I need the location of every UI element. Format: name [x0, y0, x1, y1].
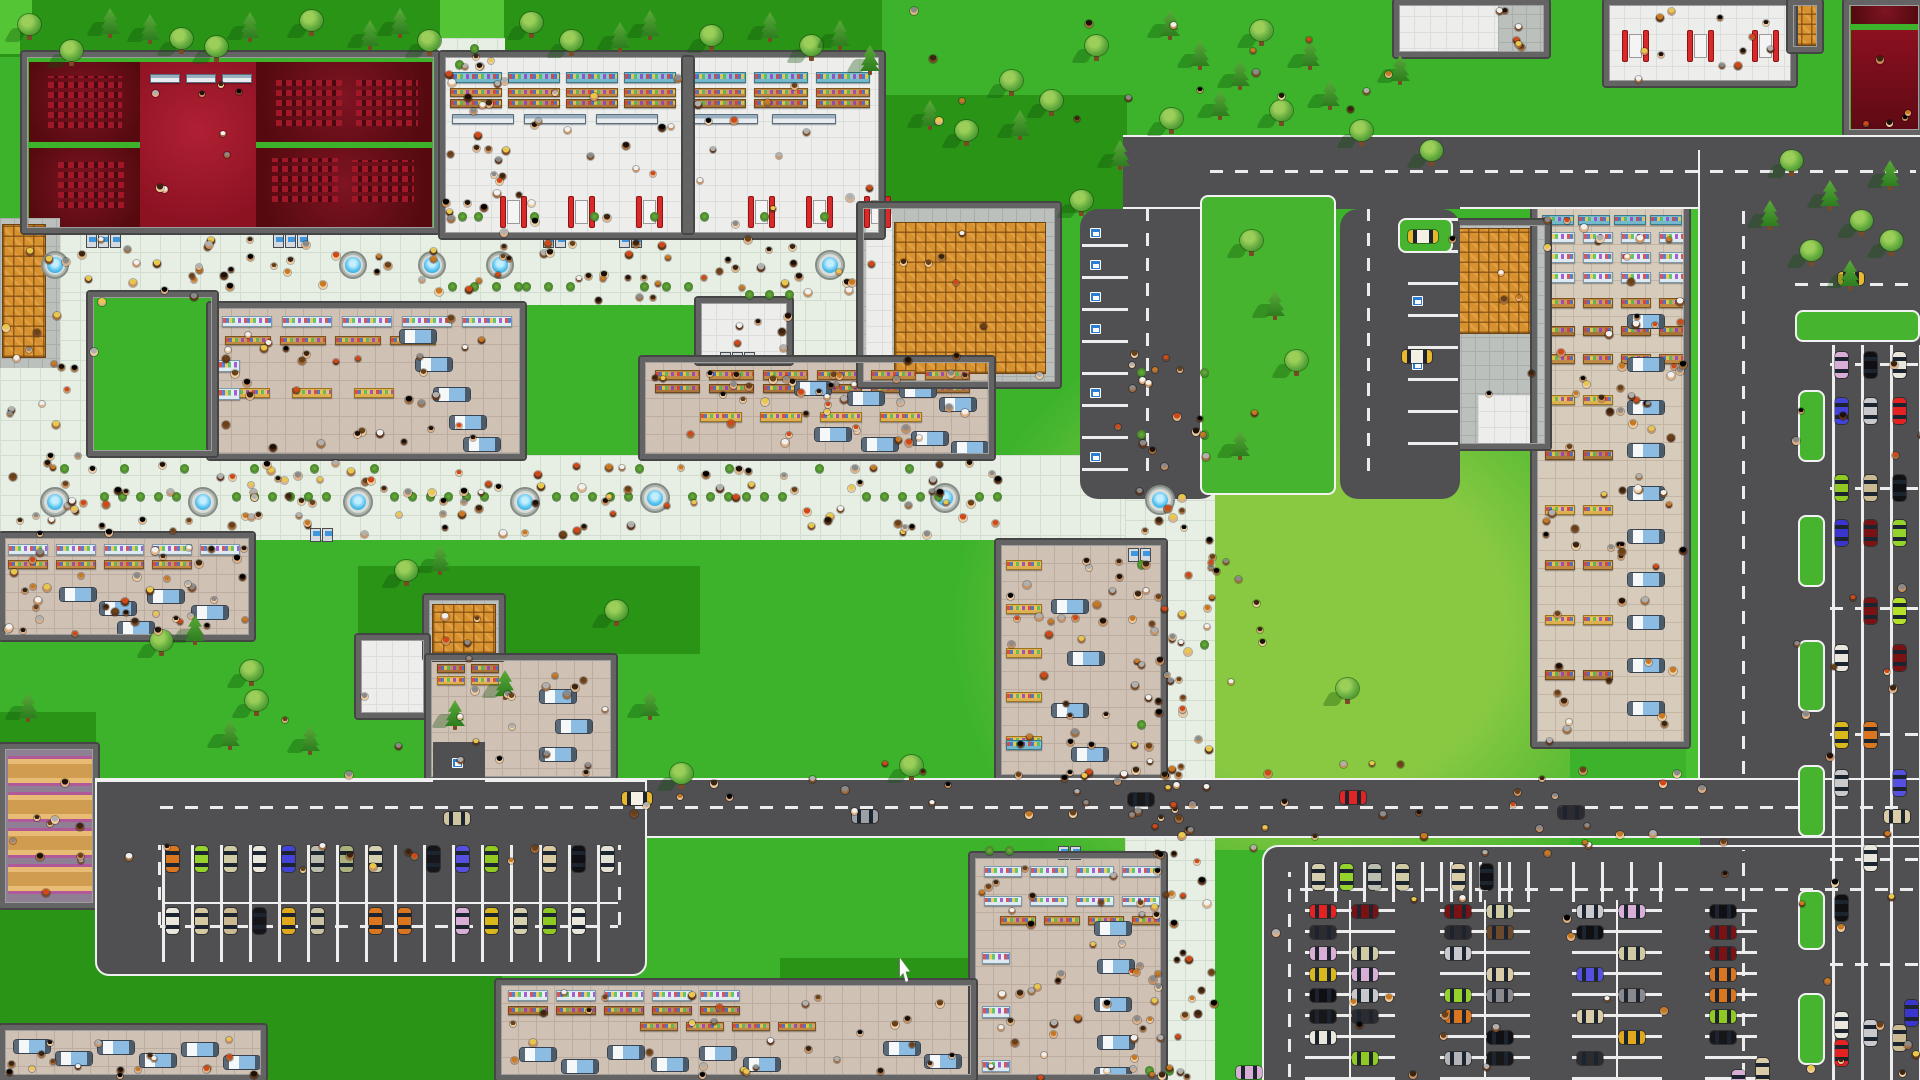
person [1161, 463, 1168, 470]
building-wall[interactable] [22, 52, 439, 233]
car[interactable] [1835, 1012, 1848, 1038]
parking-sign [1090, 452, 1101, 462]
person [75, 453, 81, 459]
person [627, 522, 635, 530]
building-wall[interactable] [424, 595, 504, 660]
tree-deciduous [18, 14, 41, 35]
building-wall[interactable] [640, 357, 994, 459]
person [1184, 1074, 1190, 1080]
car[interactable] [1340, 864, 1353, 890]
car[interactable] [485, 908, 498, 934]
car[interactable] [1352, 1052, 1378, 1065]
person [740, 397, 746, 403]
pallet-crates [2, 224, 46, 358]
car[interactable] [1368, 864, 1381, 890]
person [1767, 46, 1774, 53]
person [1157, 1035, 1164, 1042]
shrub-plant [100, 492, 109, 501]
person [1584, 823, 1590, 829]
car[interactable] [1835, 770, 1848, 796]
car[interactable] [1310, 1010, 1336, 1023]
delivery-van[interactable] [1408, 230, 1438, 243]
person [1601, 492, 1607, 498]
car[interactable] [1756, 1058, 1769, 1080]
person [1153, 912, 1160, 919]
delivery-van[interactable] [1402, 350, 1432, 363]
car[interactable] [1893, 770, 1906, 796]
person [38, 1051, 45, 1058]
tree-deciduous [1880, 230, 1903, 251]
car[interactable] [1710, 905, 1736, 918]
person [173, 616, 179, 622]
car[interactable] [1577, 905, 1603, 918]
person [1134, 808, 1142, 816]
person [1666, 502, 1672, 508]
person [953, 280, 959, 286]
person [1145, 743, 1153, 751]
car[interactable] [601, 846, 614, 872]
ticket-kiosk[interactable] [86, 234, 97, 248]
road-dash [1288, 872, 1291, 1077]
car[interactable] [456, 908, 469, 934]
car[interactable] [1864, 1020, 1877, 1046]
person [430, 248, 437, 255]
car[interactable] [1864, 845, 1877, 871]
car[interactable] [1893, 520, 1906, 546]
car[interactable] [1835, 398, 1848, 424]
car[interactable] [1487, 926, 1513, 939]
person [139, 517, 146, 524]
car[interactable] [1310, 947, 1336, 960]
person [246, 392, 254, 400]
car[interactable] [1340, 791, 1366, 804]
person [1583, 381, 1590, 388]
car[interactable] [1710, 926, 1736, 939]
building-wall[interactable] [1788, 0, 1822, 52]
car[interactable] [1310, 905, 1336, 918]
person [36, 549, 44, 557]
ticket-kiosk[interactable] [273, 234, 284, 248]
person [569, 241, 576, 248]
ticket-kiosk[interactable] [285, 234, 296, 248]
car[interactable] [1352, 968, 1378, 981]
person [1573, 391, 1579, 397]
shrub-plant [1137, 720, 1146, 729]
shrub-plant [662, 282, 671, 291]
person [882, 761, 888, 767]
person [1203, 900, 1211, 908]
person [1411, 897, 1417, 903]
person [853, 425, 859, 431]
car[interactable] [1835, 475, 1848, 501]
building-wall[interactable] [208, 303, 525, 459]
person [1679, 547, 1687, 555]
building-wall[interactable] [356, 635, 429, 718]
person [251, 494, 258, 501]
car[interactable] [1396, 864, 1409, 890]
fountain-water[interactable] [350, 494, 366, 510]
car[interactable] [1905, 1000, 1918, 1026]
building-wall[interactable] [88, 292, 217, 456]
car[interactable] [1893, 598, 1906, 624]
person [655, 281, 661, 287]
person [877, 1068, 884, 1075]
car[interactable] [1128, 793, 1154, 806]
person [783, 376, 790, 383]
shrub-plant [640, 282, 649, 291]
car[interactable] [1310, 968, 1336, 981]
person [53, 312, 61, 320]
car[interactable] [1487, 1031, 1513, 1044]
car[interactable] [1864, 398, 1877, 424]
person [29, 557, 36, 564]
grass-island [1798, 890, 1825, 950]
person [226, 1054, 233, 1061]
car[interactable] [195, 846, 208, 872]
shrub-plant [322, 492, 331, 501]
car[interactable] [427, 846, 440, 872]
car[interactable] [1236, 1066, 1262, 1079]
car[interactable] [253, 846, 266, 872]
person [1539, 776, 1545, 782]
car[interactable] [1864, 722, 1877, 748]
person [1514, 789, 1521, 796]
person [500, 254, 506, 260]
building-wall[interactable] [1604, 0, 1796, 86]
person [1192, 428, 1200, 436]
person [966, 460, 973, 467]
car[interactable] [282, 846, 295, 872]
person [52, 421, 60, 429]
building-wall[interactable] [683, 57, 693, 233]
person [945, 404, 953, 412]
person [866, 185, 873, 192]
car[interactable] [1710, 989, 1736, 1002]
car[interactable] [166, 908, 179, 934]
car[interactable] [1310, 926, 1336, 939]
car[interactable] [1710, 968, 1736, 981]
person [1158, 815, 1164, 821]
car[interactable] [1864, 598, 1877, 624]
car[interactable] [1619, 989, 1645, 1002]
car[interactable] [1577, 1010, 1603, 1023]
person [1826, 753, 1834, 761]
car[interactable] [572, 908, 585, 934]
person [727, 420, 735, 428]
person [1125, 95, 1132, 102]
person [1666, 237, 1672, 243]
tree-deciduous [395, 560, 418, 581]
car[interactable] [195, 908, 208, 934]
person [77, 853, 84, 860]
person [502, 147, 510, 155]
car[interactable] [1352, 947, 1378, 960]
person [225, 347, 231, 353]
building-wall[interactable] [1394, 0, 1549, 57]
building-wall[interactable] [496, 980, 976, 1080]
tree-deciduous [245, 690, 268, 711]
person [705, 118, 712, 125]
road-line [1698, 150, 1700, 780]
person [1145, 695, 1152, 702]
car[interactable] [1480, 864, 1493, 890]
car[interactable] [282, 908, 295, 934]
shrub-plant [448, 282, 457, 291]
car[interactable] [1864, 520, 1877, 546]
person [646, 1049, 653, 1056]
shrub-plant [684, 282, 693, 291]
person [1618, 363, 1626, 371]
person [836, 269, 842, 275]
person [1596, 235, 1604, 243]
person [753, 1065, 759, 1071]
car[interactable] [166, 846, 179, 872]
person [1181, 1012, 1189, 1020]
game-world[interactable] [0, 0, 1920, 1080]
fountain-water[interactable] [517, 494, 533, 510]
person [154, 627, 162, 635]
car[interactable] [1835, 895, 1848, 921]
person [534, 471, 542, 479]
car[interactable] [1619, 947, 1645, 960]
person [535, 118, 542, 125]
person [226, 1037, 232, 1043]
person [1492, 1024, 1500, 1032]
shrub-plant [650, 212, 659, 221]
person [1166, 1065, 1173, 1072]
car[interactable] [572, 846, 585, 872]
person [43, 584, 51, 592]
car[interactable] [1893, 645, 1906, 671]
car[interactable] [1884, 810, 1910, 823]
car[interactable] [1312, 864, 1325, 890]
tree-deciduous [1250, 20, 1273, 41]
car[interactable] [514, 908, 527, 934]
car[interactable] [1445, 926, 1471, 939]
person [636, 294, 643, 301]
person [1886, 120, 1893, 127]
car[interactable] [1864, 352, 1877, 378]
car[interactable] [1558, 806, 1584, 819]
tree-deciduous [700, 25, 723, 46]
person [1807, 1065, 1815, 1073]
person [1837, 924, 1845, 932]
person [1170, 22, 1177, 29]
person [1278, 93, 1285, 100]
car[interactable] [1445, 947, 1471, 960]
shrub-plant [552, 492, 561, 501]
shrub-plant [985, 846, 994, 855]
car[interactable] [1452, 864, 1465, 890]
person [739, 285, 745, 291]
person [1579, 767, 1587, 775]
car[interactable] [1577, 1052, 1603, 1065]
person [1037, 1075, 1044, 1080]
person [71, 365, 78, 372]
person [870, 465, 877, 472]
fountain-water[interactable] [195, 494, 211, 510]
person [58, 364, 65, 371]
car[interactable] [1445, 1010, 1471, 1023]
person [904, 1016, 911, 1023]
car[interactable] [224, 908, 237, 934]
shrub-plant [862, 492, 871, 501]
person [543, 751, 550, 758]
person [1169, 634, 1176, 641]
ticket-kiosk[interactable] [310, 528, 321, 542]
tree-deciduous [240, 660, 263, 681]
person [809, 776, 816, 783]
car[interactable] [1310, 989, 1336, 1002]
road-line [1123, 207, 1200, 209]
tree-deciduous [1336, 678, 1359, 699]
person [501, 78, 508, 85]
person [1720, 839, 1727, 846]
person [790, 260, 797, 267]
person [10, 569, 18, 577]
car[interactable] [311, 908, 324, 934]
person [1149, 1072, 1155, 1078]
person [30, 584, 36, 590]
car[interactable] [1835, 520, 1848, 546]
shrub-plant [975, 492, 984, 501]
person [78, 573, 84, 579]
car[interactable] [369, 908, 382, 934]
person [133, 260, 140, 267]
person [85, 276, 92, 283]
car[interactable] [1577, 968, 1603, 981]
person [1103, 1000, 1111, 1008]
parking-sign [1412, 296, 1423, 306]
car[interactable] [1487, 989, 1513, 1002]
person [1132, 767, 1140, 775]
fountain-water[interactable] [47, 494, 63, 510]
ticket-kiosk[interactable] [110, 234, 121, 248]
person [1668, 8, 1675, 15]
person [578, 484, 586, 492]
person [1110, 873, 1117, 880]
shrub-plant [310, 464, 319, 473]
person [156, 184, 164, 192]
fountain-water[interactable] [345, 257, 360, 272]
car[interactable] [1732, 1070, 1745, 1080]
car[interactable] [1619, 905, 1645, 918]
shrub-plant [570, 492, 579, 501]
person [1119, 941, 1125, 947]
person [1158, 1072, 1166, 1080]
person [1147, 1017, 1153, 1023]
tree-deciduous [1000, 70, 1023, 91]
person [840, 396, 848, 404]
person [161, 287, 168, 294]
tree-deciduous [300, 10, 323, 31]
person [732, 265, 739, 272]
car[interactable] [1310, 1031, 1336, 1044]
person [531, 218, 539, 226]
person [845, 287, 853, 295]
shrub-plant [1137, 430, 1146, 439]
car[interactable] [1710, 1031, 1736, 1044]
shrub-plant [232, 492, 241, 501]
person [936, 461, 943, 468]
person [470, 108, 477, 115]
car[interactable] [1352, 1010, 1378, 1023]
person [815, 995, 821, 1001]
person [1116, 559, 1122, 565]
grass-island [1798, 515, 1825, 587]
person [1027, 921, 1035, 929]
person [1175, 1034, 1181, 1040]
car[interactable] [543, 908, 556, 934]
car[interactable] [1864, 475, 1877, 501]
person [475, 505, 483, 513]
car[interactable] [1352, 905, 1378, 918]
car[interactable] [444, 812, 470, 825]
car[interactable] [1445, 989, 1471, 1002]
car[interactable] [1487, 905, 1513, 918]
tree-deciduous [1040, 90, 1063, 111]
car[interactable] [1619, 1031, 1645, 1044]
car[interactable] [1893, 475, 1906, 501]
car[interactable] [398, 908, 411, 934]
person [1176, 677, 1182, 683]
car[interactable] [1710, 1010, 1736, 1023]
person [1055, 978, 1061, 984]
person [1798, 408, 1804, 414]
car[interactable] [1835, 722, 1848, 748]
person [231, 370, 239, 378]
person [1134, 591, 1142, 599]
car[interactable] [224, 846, 237, 872]
person [1627, 278, 1635, 286]
person [470, 435, 476, 441]
person [1156, 657, 1164, 665]
person [457, 757, 464, 764]
person [511, 1057, 518, 1064]
person [89, 466, 96, 473]
car[interactable] [1577, 926, 1603, 939]
fountain-water[interactable] [647, 490, 663, 506]
person [1085, 20, 1093, 28]
car[interactable] [1893, 398, 1906, 424]
person [1416, 810, 1422, 816]
person [1007, 593, 1014, 600]
car[interactable] [1835, 352, 1848, 378]
person [846, 194, 854, 202]
person [1103, 712, 1109, 718]
person [988, 1064, 994, 1070]
person [920, 769, 926, 775]
person [1632, 321, 1640, 329]
person [923, 531, 931, 539]
ticket-kiosk[interactable] [322, 528, 333, 542]
person [281, 477, 288, 484]
person [1363, 88, 1370, 95]
car[interactable] [456, 846, 469, 872]
car[interactable] [253, 908, 266, 934]
car[interactable] [1445, 905, 1471, 918]
person [848, 279, 856, 287]
shrub-plant [180, 464, 189, 473]
car[interactable] [1487, 1052, 1513, 1065]
car[interactable] [485, 846, 498, 872]
car[interactable] [1710, 947, 1736, 960]
car[interactable] [1487, 968, 1513, 981]
car[interactable] [543, 846, 556, 872]
grass-island [1798, 390, 1825, 462]
person [1839, 412, 1847, 420]
car[interactable] [1445, 1052, 1471, 1065]
